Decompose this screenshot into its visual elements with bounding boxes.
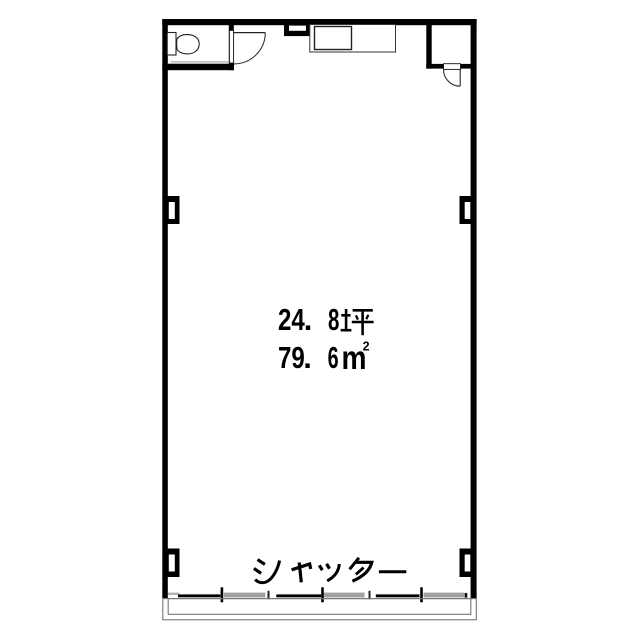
svg-text:24: 24 [278, 302, 305, 337]
svg-text:2: 2 [363, 340, 370, 354]
svg-text:6: 6 [328, 340, 339, 375]
svg-text:.: . [304, 302, 313, 337]
svg-text:.: . [303, 340, 312, 375]
svg-text:8: 8 [328, 302, 339, 337]
svg-text:79: 79 [278, 340, 305, 375]
